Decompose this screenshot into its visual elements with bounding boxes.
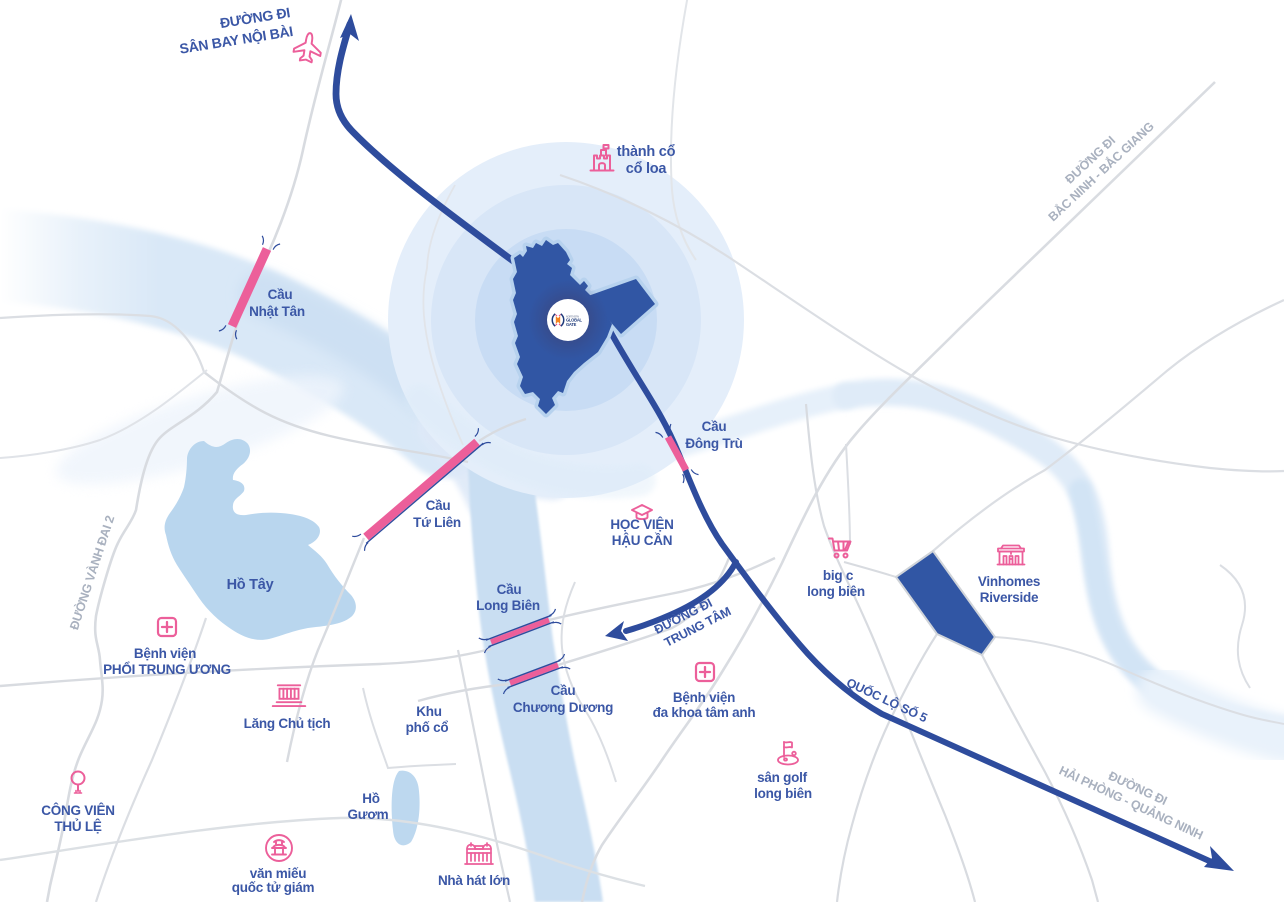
svg-text:GATE: GATE: [566, 322, 577, 327]
svg-text:Hồ Tây: Hồ Tây: [227, 577, 274, 593]
svg-text:Nhà hát lớn: Nhà hát lớn: [438, 873, 510, 888]
svg-text:sân golflong biên: sân golflong biên: [754, 770, 812, 801]
svg-text:Lăng Chủ tịch: Lăng Chủ tịch: [244, 716, 331, 731]
svg-text:VinhomesRiverside: VinhomesRiverside: [978, 574, 1040, 605]
svg-text:HỌC VIỆNHẬU CẦN: HỌC VIỆNHẬU CẦN: [610, 517, 673, 548]
